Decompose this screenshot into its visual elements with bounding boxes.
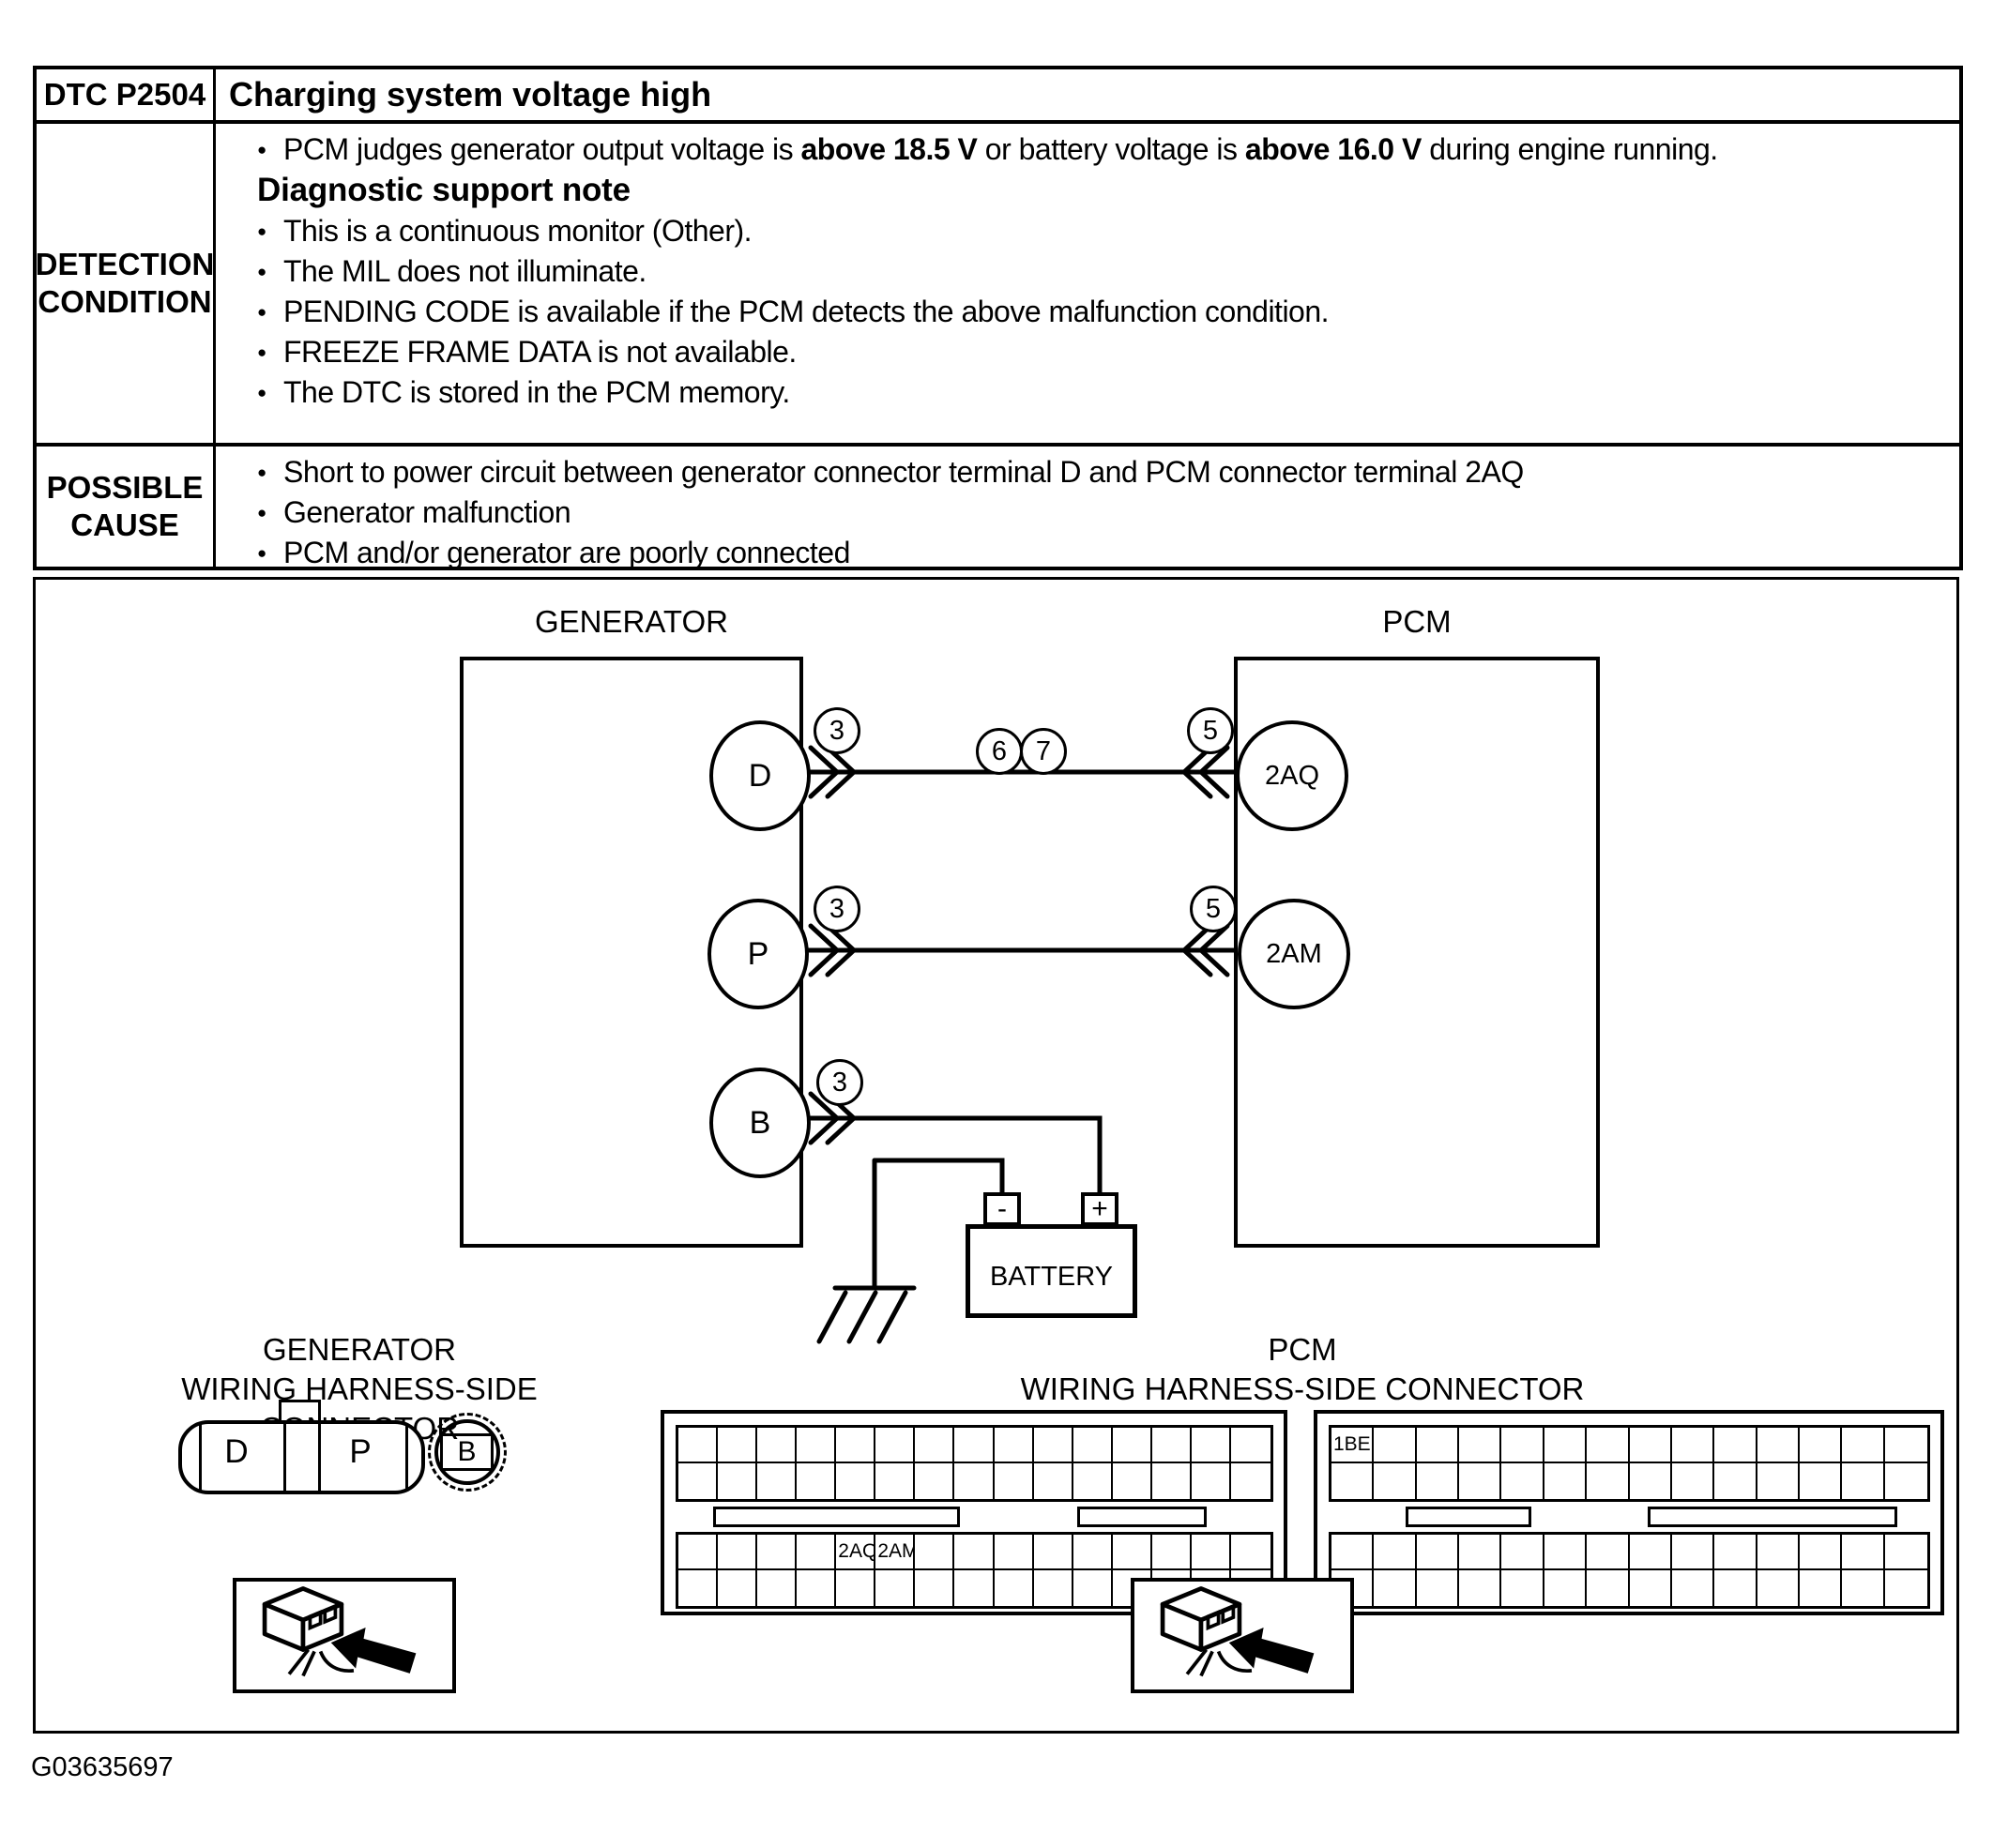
connector-slot bbox=[713, 1507, 960, 1527]
pin-cell bbox=[1714, 1570, 1757, 1606]
pin-cell bbox=[1113, 1463, 1152, 1499]
pin-cell bbox=[1034, 1570, 1073, 1606]
generator-label: GENERATOR bbox=[460, 604, 803, 640]
callout-3-b: 3 bbox=[816, 1059, 863, 1106]
pin-cell bbox=[995, 1463, 1034, 1499]
connector-view-icon bbox=[236, 1582, 445, 1682]
pin-cell bbox=[678, 1535, 718, 1570]
bullet-item: ●This is a continuous monitor (Other). bbox=[257, 211, 1950, 251]
pin-cell bbox=[1152, 1535, 1192, 1570]
pin-cell bbox=[718, 1535, 757, 1570]
pin-cell bbox=[1672, 1463, 1714, 1499]
bullet-dot: ● bbox=[257, 452, 283, 492]
pin-cell bbox=[995, 1428, 1034, 1463]
pin-cell bbox=[836, 1463, 875, 1499]
pin-cell bbox=[1073, 1535, 1113, 1570]
pin-cell bbox=[1192, 1428, 1231, 1463]
pin-cell bbox=[678, 1570, 718, 1606]
pin-cell bbox=[1672, 1428, 1714, 1463]
pin-cell bbox=[1842, 1535, 1884, 1570]
bullet-text: PENDING CODE is available if the PCM det… bbox=[283, 292, 1950, 332]
terminal-p: P bbox=[707, 899, 809, 1009]
pin-cell bbox=[1374, 1428, 1416, 1463]
detection-condition-row: DETECTION CONDITION ● PCM judges generat… bbox=[37, 124, 1959, 447]
pin-cell bbox=[1885, 1535, 1927, 1570]
pin-cell bbox=[995, 1535, 1034, 1570]
pin-cell bbox=[1113, 1535, 1152, 1570]
pin-cell bbox=[1073, 1570, 1113, 1606]
bullet-text: The DTC is stored in the PCM memory. bbox=[283, 372, 1950, 413]
bullet-item: ●The DTC is stored in the PCM memory. bbox=[257, 372, 1950, 413]
bullet-text: Short to power circuit between generator… bbox=[283, 452, 1950, 492]
connector-slot bbox=[1648, 1507, 1897, 1527]
pin-cell bbox=[797, 1535, 836, 1570]
terminal-d: D bbox=[709, 720, 811, 831]
pin-cell bbox=[954, 1463, 994, 1499]
pin-cell bbox=[1459, 1428, 1501, 1463]
possible-cause-label-line1: POSSIBLE bbox=[47, 469, 204, 507]
pin-cell bbox=[954, 1570, 994, 1606]
detection-label-line2: CONDITION bbox=[38, 283, 211, 321]
pcm-right-bottom-grid bbox=[1329, 1532, 1930, 1609]
pin-cell bbox=[1034, 1463, 1073, 1499]
pin-cell bbox=[1885, 1570, 1927, 1606]
pin-cell bbox=[1374, 1463, 1416, 1499]
detection-main-bullet-text: PCM judges generator output voltage is a… bbox=[283, 129, 1950, 170]
pin-cell bbox=[1073, 1463, 1113, 1499]
pin-cell bbox=[995, 1570, 1034, 1606]
possible-cause-content: ●Short to power circuit between generato… bbox=[216, 447, 1959, 567]
bullet-dot: ● bbox=[257, 129, 283, 170]
pin-cell bbox=[757, 1463, 797, 1499]
pin-cell bbox=[1192, 1535, 1231, 1570]
pin-cell bbox=[1331, 1535, 1374, 1570]
pcm-connector-view-box bbox=[1131, 1578, 1354, 1693]
dtc-title-cell: Charging system voltage high bbox=[216, 69, 1959, 120]
pin-cell bbox=[1630, 1570, 1672, 1606]
main-bullet-bold2: above 16.0 V bbox=[1245, 132, 1422, 166]
pill-divider bbox=[318, 1424, 321, 1491]
dtc-code-cell: DTC P2504 bbox=[37, 69, 216, 120]
pin-cell bbox=[915, 1570, 954, 1606]
pin-cell bbox=[1501, 1463, 1544, 1499]
pin-cell-label: 1BE bbox=[1331, 1428, 1374, 1463]
pin-cell bbox=[1630, 1428, 1672, 1463]
pin-cell bbox=[1417, 1463, 1459, 1499]
pin-cell bbox=[915, 1463, 954, 1499]
pin-cell bbox=[797, 1570, 836, 1606]
bullet-item: ●The MIL does not illuminate. bbox=[257, 251, 1950, 292]
bullet-item: ●PCM and/or generator are poorly connect… bbox=[257, 533, 1950, 573]
pin-cell bbox=[1757, 1570, 1800, 1606]
bullet-item: ●Short to power circuit between generato… bbox=[257, 452, 1950, 492]
pin-cell bbox=[1842, 1463, 1884, 1499]
bullet-item: ●PENDING CODE is available if the PCM de… bbox=[257, 292, 1950, 332]
pin-cell bbox=[1800, 1570, 1842, 1606]
possible-cause-row: POSSIBLE CAUSE ●Short to power circuit b… bbox=[37, 447, 1959, 567]
pin-cell bbox=[718, 1428, 757, 1463]
pin-cell bbox=[1714, 1535, 1757, 1570]
bullet-dot: ● bbox=[257, 292, 283, 332]
pin-cell bbox=[1672, 1570, 1714, 1606]
pin-cell bbox=[1544, 1428, 1587, 1463]
pin-cell bbox=[1800, 1428, 1842, 1463]
pin-cell bbox=[1544, 1570, 1587, 1606]
pin-cell bbox=[915, 1535, 954, 1570]
pcm-connector-title: PCM WIRING HARNESS-SIDE CONNECTOR bbox=[739, 1330, 1865, 1409]
pin-cell bbox=[1757, 1535, 1800, 1570]
pin-cell bbox=[1757, 1463, 1800, 1499]
pcm-connector-right-block: 1BE bbox=[1314, 1410, 1944, 1615]
callout-3-p: 3 bbox=[814, 886, 860, 932]
pin-cell bbox=[954, 1535, 994, 1570]
possible-cause-bullets: ●Short to power circuit between generato… bbox=[257, 452, 1950, 573]
pin-cell-label: 2AQ bbox=[836, 1535, 875, 1570]
bullet-dot: ● bbox=[257, 492, 283, 533]
bullet-dot: ● bbox=[257, 533, 283, 573]
pin-cell bbox=[1073, 1428, 1113, 1463]
main-bullet-pre: PCM judges generator output voltage is bbox=[283, 132, 801, 166]
bullet-dot: ● bbox=[257, 251, 283, 292]
pin-cell bbox=[1885, 1463, 1927, 1499]
connector-slot bbox=[1406, 1507, 1531, 1527]
pin-cell bbox=[1842, 1570, 1884, 1606]
diagnostic-support-note-heading: Diagnostic support note bbox=[257, 170, 1950, 211]
pin-cell bbox=[1800, 1535, 1842, 1570]
bullet-text: PCM and/or generator are poorly connecte… bbox=[283, 533, 1950, 573]
pin-cell bbox=[1501, 1570, 1544, 1606]
pin-cell bbox=[1459, 1570, 1501, 1606]
pin-cell bbox=[1587, 1570, 1629, 1606]
callout-3-d: 3 bbox=[814, 707, 860, 754]
pin-cell bbox=[954, 1428, 994, 1463]
main-bullet-mid: or battery voltage is bbox=[977, 132, 1245, 166]
detection-support-bullets: ●This is a continuous monitor (Other).●T… bbox=[257, 211, 1950, 413]
possible-cause-label-line2: CAUSE bbox=[70, 507, 179, 544]
pin-cell bbox=[1113, 1428, 1152, 1463]
pill-divider bbox=[405, 1424, 408, 1491]
pin-cell bbox=[1672, 1535, 1714, 1570]
pin-cell bbox=[1231, 1463, 1270, 1499]
pin-cell bbox=[1231, 1428, 1270, 1463]
pin-cell bbox=[1417, 1428, 1459, 1463]
generator-pin-d: D bbox=[199, 1433, 274, 1471]
possible-cause-label: POSSIBLE CAUSE bbox=[37, 447, 216, 567]
pin-cell bbox=[1374, 1535, 1416, 1570]
pcm-label: PCM bbox=[1234, 604, 1600, 640]
pin-cell bbox=[836, 1428, 875, 1463]
detection-label-line1: DETECTION bbox=[36, 246, 215, 283]
pin-cell bbox=[1885, 1428, 1927, 1463]
detection-row-label: DETECTION CONDITION bbox=[37, 124, 216, 443]
callout-7: 7 bbox=[1020, 728, 1067, 775]
pin-cell bbox=[1501, 1535, 1544, 1570]
bullet-item: ●Generator malfunction bbox=[257, 492, 1950, 533]
pin-cell bbox=[1544, 1463, 1587, 1499]
pin-cell bbox=[757, 1428, 797, 1463]
battery-box: BATTERY bbox=[966, 1224, 1137, 1318]
pin-cell bbox=[718, 1463, 757, 1499]
pin-cell bbox=[875, 1463, 915, 1499]
pin-cell bbox=[875, 1570, 915, 1606]
generator-pin-p: P bbox=[323, 1433, 398, 1471]
pin-cell bbox=[1331, 1463, 1374, 1499]
pin-cell bbox=[757, 1570, 797, 1606]
pin-cell bbox=[1374, 1570, 1416, 1606]
bullet-text: This is a continuous monitor (Other). bbox=[283, 211, 1950, 251]
pin-cell bbox=[1587, 1535, 1629, 1570]
generator-connector-view-box bbox=[233, 1578, 456, 1693]
pin-cell bbox=[1544, 1535, 1587, 1570]
terminal-2am: 2AM bbox=[1238, 899, 1350, 1009]
bullet-text: FREEZE FRAME DATA is not available. bbox=[283, 332, 1950, 372]
service-manual-page: DTC P2504 Charging system voltage high D… bbox=[0, 0, 1993, 1848]
pin-cell bbox=[836, 1570, 875, 1606]
generator-connector-title-line1: GENERATOR bbox=[78, 1330, 641, 1370]
pin-cell bbox=[1034, 1428, 1073, 1463]
pin-cell bbox=[1714, 1428, 1757, 1463]
figure-id: G03635697 bbox=[31, 1752, 174, 1783]
bullet-dot: ● bbox=[257, 332, 283, 372]
pin-cell bbox=[797, 1428, 836, 1463]
pin-cell bbox=[678, 1428, 718, 1463]
terminal-2aq: 2AQ bbox=[1236, 720, 1348, 831]
bullet-text: Generator malfunction bbox=[283, 492, 1950, 533]
pin-cell bbox=[678, 1463, 718, 1499]
pill-divider bbox=[283, 1424, 286, 1491]
pin-cell bbox=[1459, 1463, 1501, 1499]
bullet-dot: ● bbox=[257, 372, 283, 413]
detection-content: ● PCM judges generator output voltage is… bbox=[216, 124, 1959, 443]
callout-5-2am: 5 bbox=[1190, 886, 1237, 932]
pin-cell bbox=[1231, 1535, 1270, 1570]
bullet-item: ●FREEZE FRAME DATA is not available. bbox=[257, 332, 1950, 372]
pin-cell bbox=[1800, 1463, 1842, 1499]
pin-cell bbox=[1587, 1428, 1629, 1463]
detection-main-bullet: ● PCM judges generator output voltage is… bbox=[257, 129, 1950, 170]
pin-cell bbox=[1152, 1463, 1192, 1499]
pin-cell bbox=[1417, 1570, 1459, 1606]
bullet-text: The MIL does not illuminate. bbox=[283, 251, 1950, 292]
callout-5-2aq: 5 bbox=[1187, 707, 1234, 754]
pin-cell bbox=[1417, 1535, 1459, 1570]
pin-cell bbox=[915, 1428, 954, 1463]
main-bullet-post: during engine running. bbox=[1422, 132, 1718, 166]
pin-cell bbox=[797, 1463, 836, 1499]
connector-slot bbox=[1077, 1507, 1207, 1527]
battery-plus-terminal: + bbox=[1081, 1192, 1118, 1226]
bullet-dot: ● bbox=[257, 211, 283, 251]
pin-cell bbox=[1757, 1428, 1800, 1463]
main-bullet-bold1: above 18.5 V bbox=[801, 132, 978, 166]
terminal-b: B bbox=[709, 1068, 811, 1178]
dtc-header-row: DTC P2504 Charging system voltage high bbox=[37, 69, 1959, 124]
pin-cell bbox=[1630, 1535, 1672, 1570]
pin-cell bbox=[875, 1428, 915, 1463]
connector-view-icon bbox=[1134, 1582, 1343, 1682]
battery-label: BATTERY bbox=[990, 1262, 1113, 1293]
pin-cell bbox=[718, 1570, 757, 1606]
pin-cell bbox=[1034, 1535, 1073, 1570]
generator-pin-b: B bbox=[440, 1433, 494, 1471]
pcm-right-top-grid: 1BE bbox=[1329, 1425, 1930, 1502]
pin-cell bbox=[1714, 1463, 1757, 1499]
pin-cell bbox=[1587, 1463, 1629, 1499]
pin-cell bbox=[1192, 1463, 1231, 1499]
pin-cell bbox=[1501, 1428, 1544, 1463]
pin-cell-label: 2AM bbox=[875, 1535, 915, 1570]
pcm-connector-title-line2: WIRING HARNESS-SIDE CONNECTOR bbox=[739, 1370, 1865, 1409]
pin-cell bbox=[1152, 1428, 1192, 1463]
pcm-left-top-grid bbox=[676, 1425, 1273, 1502]
pin-cell bbox=[1842, 1428, 1884, 1463]
pcm-connector-title-line1: PCM bbox=[739, 1330, 1865, 1370]
pin-cell bbox=[1459, 1535, 1501, 1570]
callout-6: 6 bbox=[976, 728, 1023, 775]
pin-cell bbox=[757, 1535, 797, 1570]
dtc-table: DTC P2504 Charging system voltage high D… bbox=[33, 66, 1963, 570]
pin-cell bbox=[1630, 1463, 1672, 1499]
battery-minus-terminal: - bbox=[983, 1192, 1021, 1226]
